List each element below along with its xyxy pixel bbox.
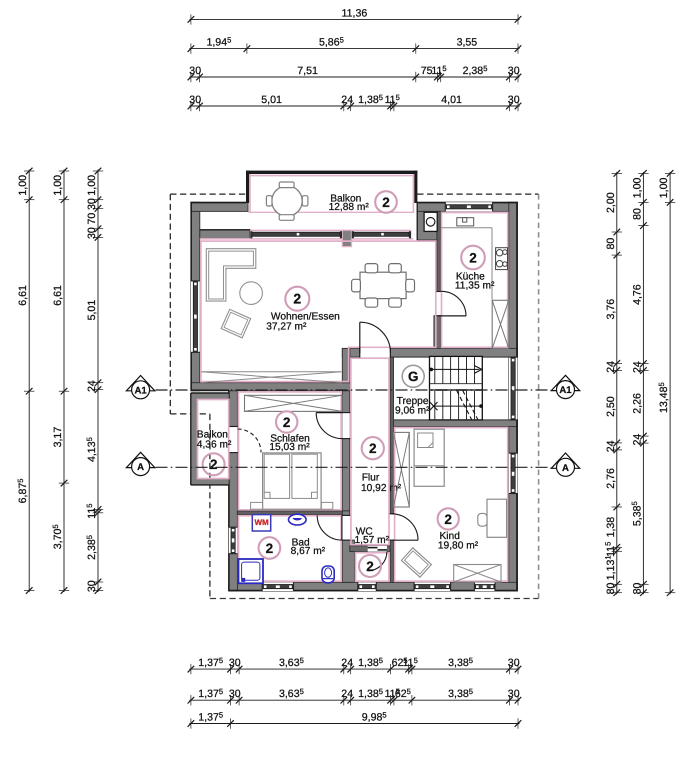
svg-text:30: 30 xyxy=(508,94,520,106)
svg-text:11,36: 11,36 xyxy=(342,7,368,19)
svg-text:80: 80 xyxy=(605,238,617,250)
svg-text:1,57 m²: 1,57 m² xyxy=(355,535,390,546)
svg-text:2: 2 xyxy=(469,250,477,265)
svg-text:30: 30 xyxy=(189,65,201,77)
svg-text:30: 30 xyxy=(86,227,98,239)
svg-text:11,35 m²: 11,35 m² xyxy=(455,280,495,291)
svg-text:A: A xyxy=(562,463,569,474)
svg-text:2: 2 xyxy=(366,559,374,574)
svg-text:24: 24 xyxy=(86,380,98,392)
svg-text:30: 30 xyxy=(229,657,241,669)
svg-text:24: 24 xyxy=(341,657,353,669)
svg-text:2: 2 xyxy=(293,291,301,307)
svg-text:2: 2 xyxy=(369,441,377,456)
svg-text:13,485: 13,485 xyxy=(657,382,670,413)
svg-text:24: 24 xyxy=(631,434,643,446)
svg-text:A1: A1 xyxy=(134,385,147,396)
svg-text:1,00: 1,00 xyxy=(658,177,670,198)
svg-text:1,00: 1,00 xyxy=(52,175,64,196)
svg-text:37,27 m²: 37,27 m² xyxy=(266,321,307,332)
svg-text:30: 30 xyxy=(229,688,241,700)
svg-text:1,00: 1,00 xyxy=(17,175,29,196)
svg-text:19,80 m²: 19,80 m² xyxy=(438,540,479,551)
svg-text:A1: A1 xyxy=(559,385,572,396)
svg-text:2: 2 xyxy=(382,195,390,210)
svg-text:2,50: 2,50 xyxy=(605,396,617,417)
svg-text:2,26: 2,26 xyxy=(631,393,643,414)
svg-text:9,06 m²: 9,06 m² xyxy=(395,405,430,416)
svg-text:WM: WM xyxy=(254,518,269,527)
svg-text:1,38: 1,38 xyxy=(605,517,617,538)
svg-text:G: G xyxy=(408,369,418,384)
svg-text:10,92 m²: 10,92 m² xyxy=(361,483,402,494)
svg-text:80: 80 xyxy=(631,583,643,595)
svg-text:2: 2 xyxy=(444,512,452,527)
svg-text:24: 24 xyxy=(605,361,617,373)
svg-text:30: 30 xyxy=(189,94,201,106)
svg-text:7,51: 7,51 xyxy=(297,65,318,77)
svg-text:4,01: 4,01 xyxy=(441,94,462,106)
svg-text:30: 30 xyxy=(508,65,520,77)
svg-text:24: 24 xyxy=(341,688,353,700)
svg-text:24: 24 xyxy=(631,361,643,373)
svg-text:2,76: 2,76 xyxy=(605,468,617,489)
svg-text:3,55: 3,55 xyxy=(457,37,478,49)
svg-text:3,76: 3,76 xyxy=(605,299,617,320)
svg-text:24: 24 xyxy=(341,94,353,106)
svg-text:80: 80 xyxy=(631,208,643,220)
svg-text:Flur: Flur xyxy=(362,472,380,483)
svg-text:6,61: 6,61 xyxy=(52,285,64,306)
svg-text:30: 30 xyxy=(86,198,98,210)
svg-text:1,00: 1,00 xyxy=(86,175,98,196)
svg-text:2: 2 xyxy=(210,457,218,472)
svg-text:30: 30 xyxy=(86,580,98,592)
svg-text:30: 30 xyxy=(508,657,520,669)
svg-text:24: 24 xyxy=(605,440,617,452)
svg-text:5,01: 5,01 xyxy=(261,94,282,106)
svg-text:1,00: 1,00 xyxy=(631,177,643,198)
svg-text:3,17: 3,17 xyxy=(52,427,64,448)
svg-text:15,03 m²: 15,03 m² xyxy=(269,442,310,453)
svg-text:4,36 m²: 4,36 m² xyxy=(197,440,232,451)
svg-text:2,00: 2,00 xyxy=(605,192,617,213)
svg-text:8,67 m²: 8,67 m² xyxy=(291,546,326,557)
svg-text:4,76: 4,76 xyxy=(631,284,643,305)
svg-text:80: 80 xyxy=(605,583,617,595)
svg-text:70: 70 xyxy=(86,213,98,225)
svg-text:2: 2 xyxy=(283,415,291,430)
svg-text:30: 30 xyxy=(508,688,520,700)
svg-text:A: A xyxy=(137,462,144,473)
svg-text:2: 2 xyxy=(266,541,274,556)
svg-text:5,01: 5,01 xyxy=(86,300,98,321)
svg-text:6,61: 6,61 xyxy=(17,285,29,306)
svg-text:12,88 m²: 12,88 m² xyxy=(329,202,370,213)
